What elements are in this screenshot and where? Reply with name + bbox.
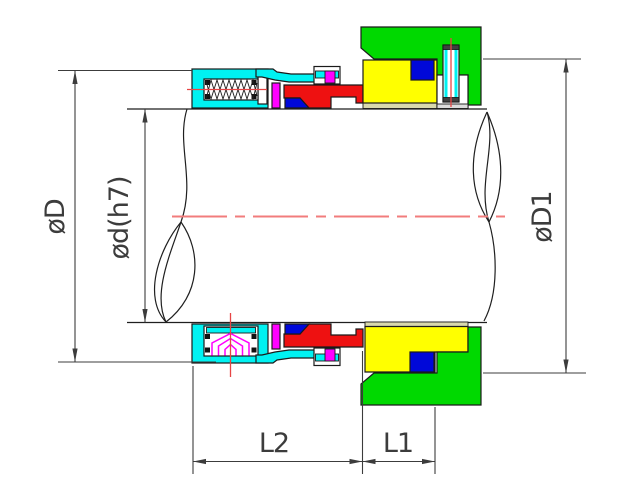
seal-assembly-top bbox=[187, 27, 481, 109]
seat-rim-top bbox=[363, 103, 437, 109]
label-shaft-diameter: ød(h7) bbox=[104, 176, 135, 259]
spring-seat-tick bbox=[252, 348, 257, 353]
seat-oring-bottom bbox=[410, 352, 434, 372]
label-outer-diameter: øD bbox=[40, 199, 71, 235]
seal-wedge-bottom bbox=[272, 324, 280, 349]
set-screw-top bbox=[325, 71, 335, 83]
anti-rotation-pin bbox=[443, 38, 459, 107]
shaft bbox=[127, 109, 505, 323]
seal-drawing-canvas: øD ød(h7) øD1 L2 L1 bbox=[0, 0, 632, 489]
label-seat-diameter: øD1 bbox=[527, 191, 558, 243]
dimensioning: øD ød(h7) øD1 L2 L1 bbox=[40, 59, 586, 474]
spring-seat-tick bbox=[205, 334, 210, 339]
seat-oring-top bbox=[411, 60, 434, 80]
dim-shaft-diameter: ød(h7) bbox=[104, 109, 148, 323]
cavity-floor bbox=[437, 104, 468, 109]
seat-rim-bottom bbox=[365, 322, 468, 327]
seal-assembly-bottom bbox=[192, 313, 481, 405]
spring-seat-tick bbox=[252, 334, 257, 339]
seal-wedge-top bbox=[272, 83, 280, 108]
mechanical-seal-section-drawing: øD ød(h7) øD1 L2 L1 bbox=[0, 0, 632, 489]
set-screw-bottom bbox=[325, 349, 335, 361]
spring-seat-tick bbox=[205, 348, 210, 353]
spring-seat-tick bbox=[205, 80, 210, 85]
label-length-l1: L1 bbox=[383, 428, 413, 459]
label-length-l2: L2 bbox=[259, 428, 289, 459]
